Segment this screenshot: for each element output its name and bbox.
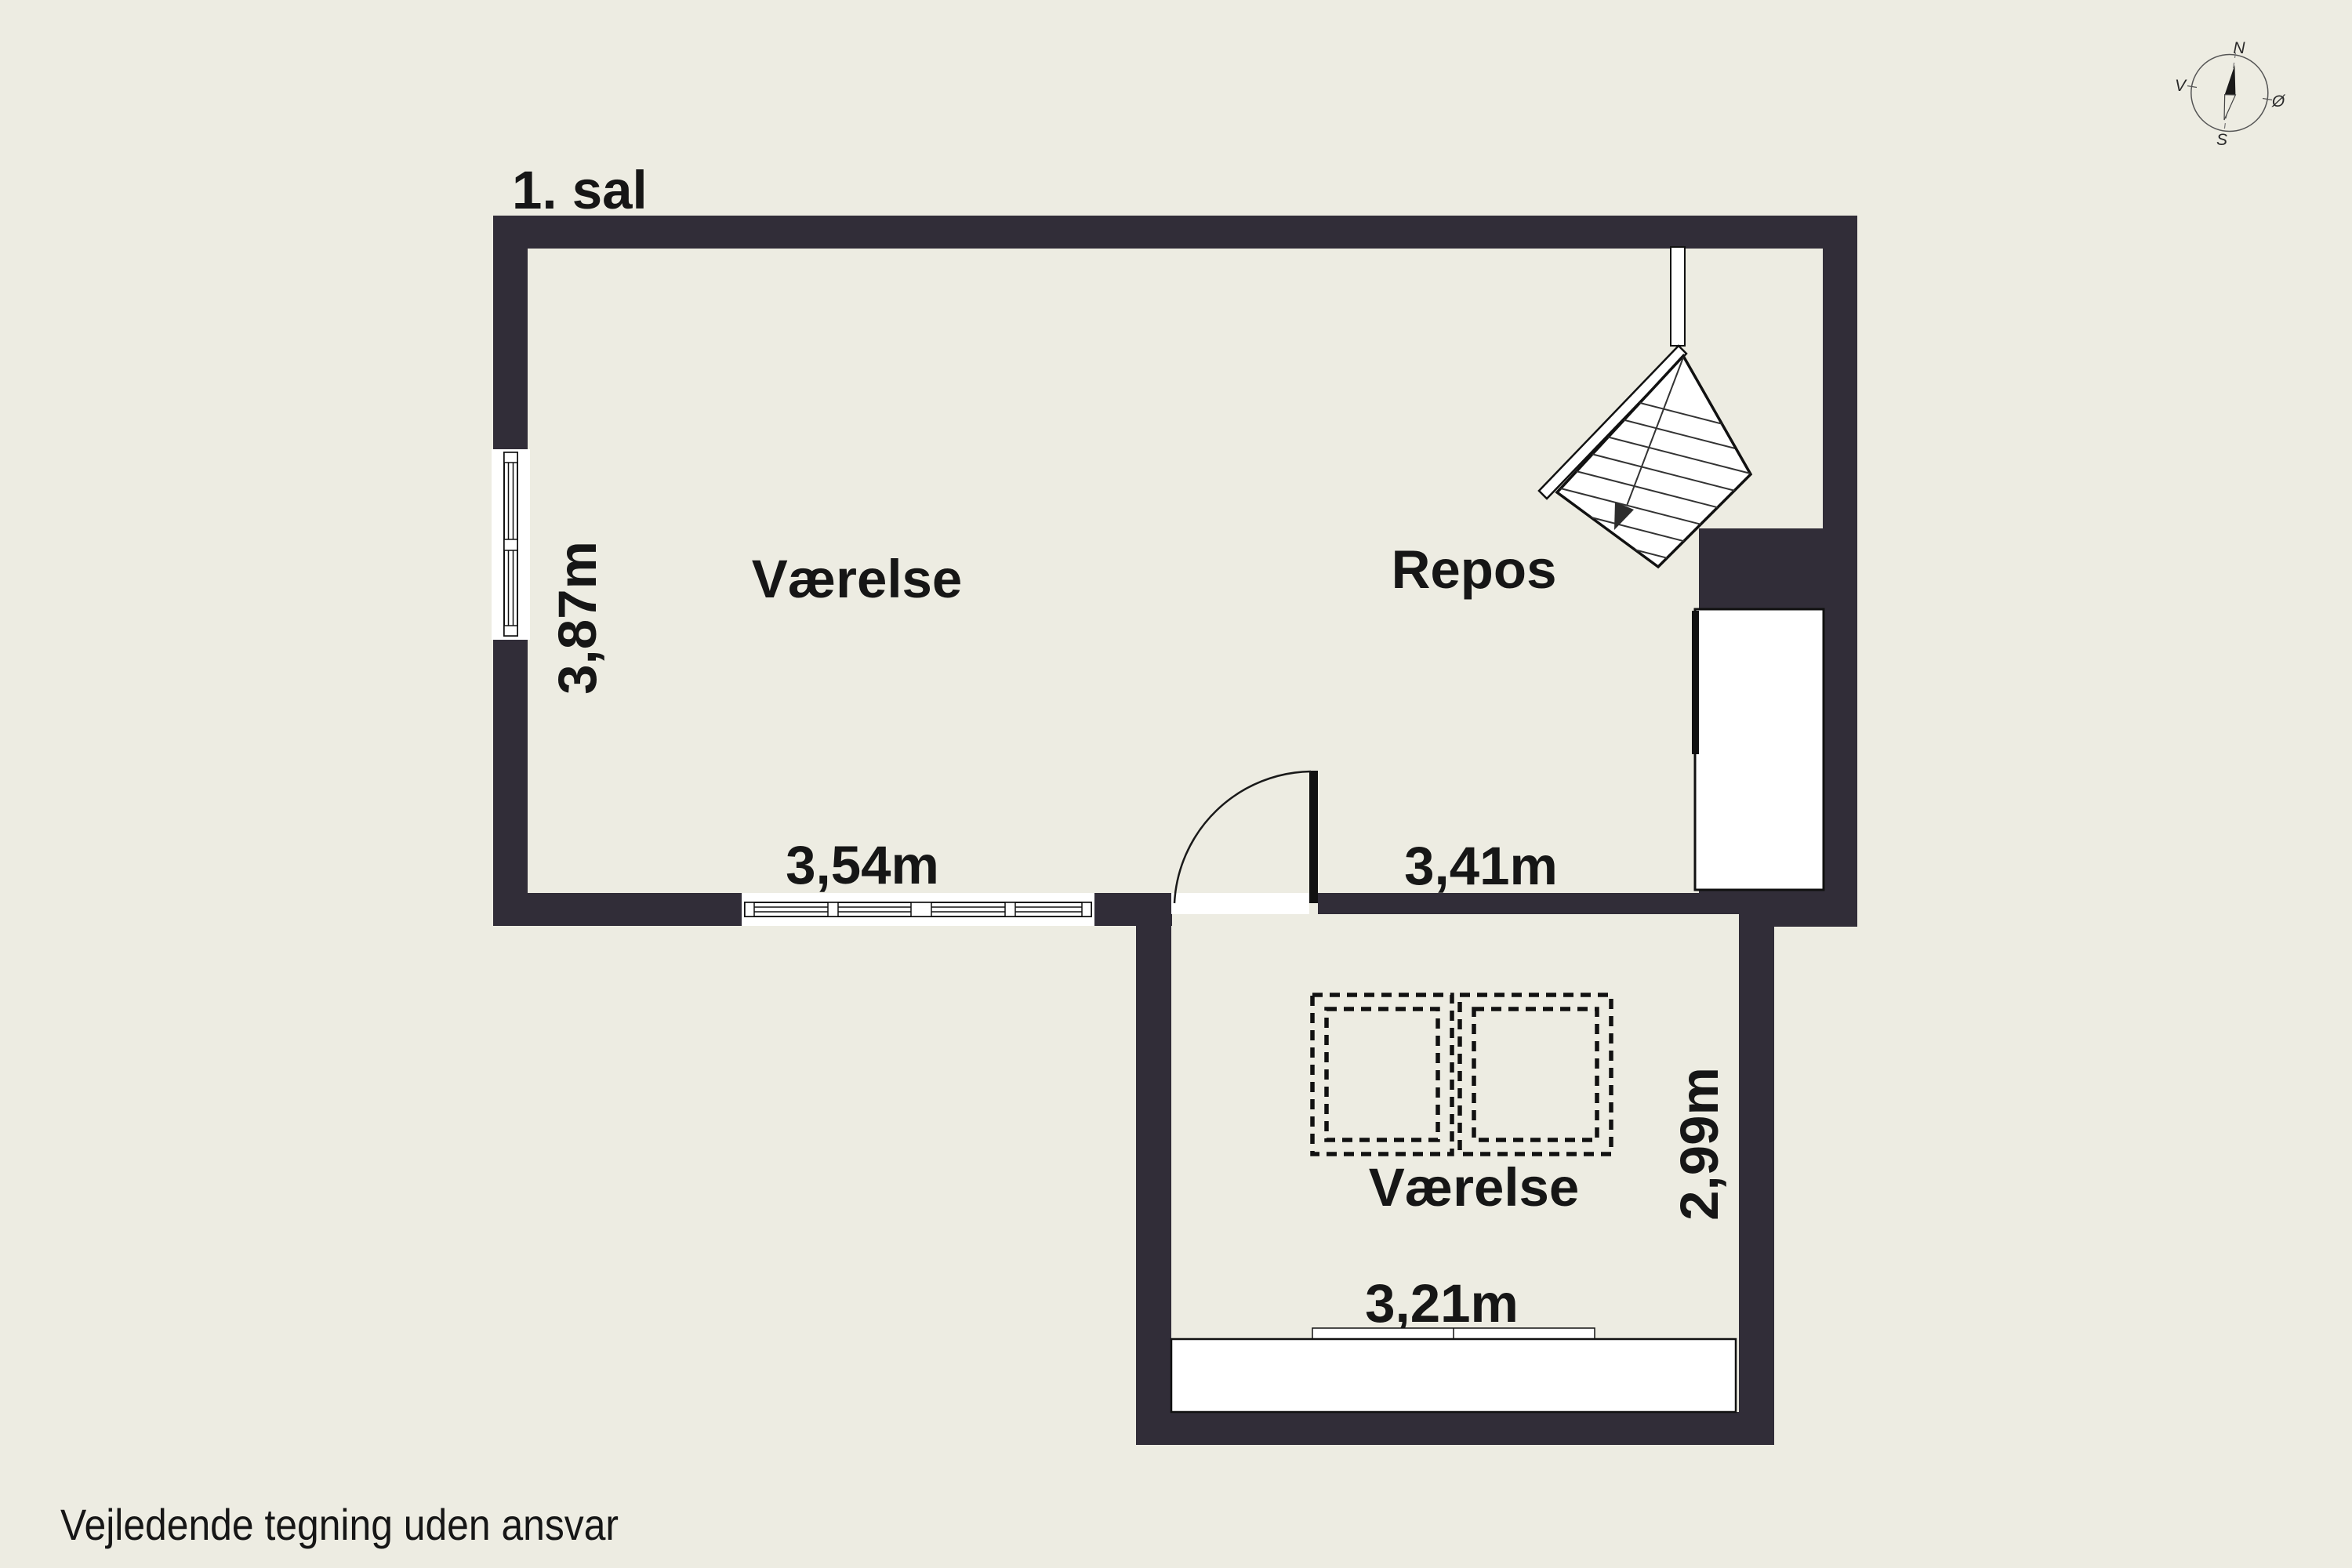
svg-text:Vejledende tegning uden ansvar: Vejledende tegning uden ansvar	[60, 1500, 619, 1549]
svg-text:N: N	[2233, 39, 2245, 57]
svg-text:3,54m: 3,54m	[786, 835, 939, 895]
svg-text:Repos: Repos	[1392, 539, 1557, 600]
svg-text:Værelse: Værelse	[752, 549, 963, 609]
svg-text:3,41m: 3,41m	[1404, 836, 1558, 896]
svg-text:V: V	[2175, 77, 2187, 95]
svg-text:3,21m: 3,21m	[1365, 1273, 1519, 1334]
svg-text:Værelse: Værelse	[1369, 1157, 1580, 1218]
svg-text:2,99m: 2,99m	[1669, 1067, 1730, 1221]
svg-text:1. sal: 1. sal	[512, 160, 648, 220]
svg-text:Ø: Ø	[2271, 93, 2286, 111]
svg-text:3,87m: 3,87m	[547, 541, 608, 695]
svg-text:S: S	[2216, 131, 2227, 149]
